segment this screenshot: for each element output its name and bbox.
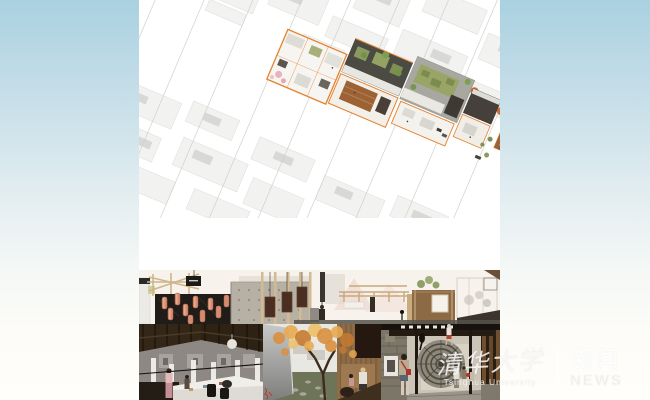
watermark-separator-bar bbox=[557, 349, 559, 387]
news-image-page: 清华大学 Tsinghua University 新闻 NEWS bbox=[0, 0, 650, 400]
paper-lantern bbox=[227, 339, 237, 349]
watermark-university-zh: 清华大学 bbox=[435, 347, 544, 378]
office-chair bbox=[207, 384, 216, 397]
watermark-news-zh: 新闻 bbox=[570, 349, 623, 370]
watermark-news: 新闻 NEWS bbox=[570, 349, 623, 388]
axonometric-masterplan-rendering bbox=[139, 0, 500, 218]
watermark: 清华大学 Tsinghua University 新闻 NEWS bbox=[436, 338, 636, 398]
street-elevation-collage bbox=[139, 270, 500, 324]
vertical-banner bbox=[320, 272, 325, 302]
watermark-university: 清华大学 Tsinghua University bbox=[436, 350, 544, 387]
office-chair bbox=[220, 388, 229, 399]
watermark-news-en: NEWS bbox=[570, 373, 623, 388]
watermark-university-en: Tsinghua University bbox=[436, 378, 544, 387]
interior-hall-rendering bbox=[139, 324, 263, 400]
courtyard-autumn-tree-rendering bbox=[263, 324, 381, 400]
